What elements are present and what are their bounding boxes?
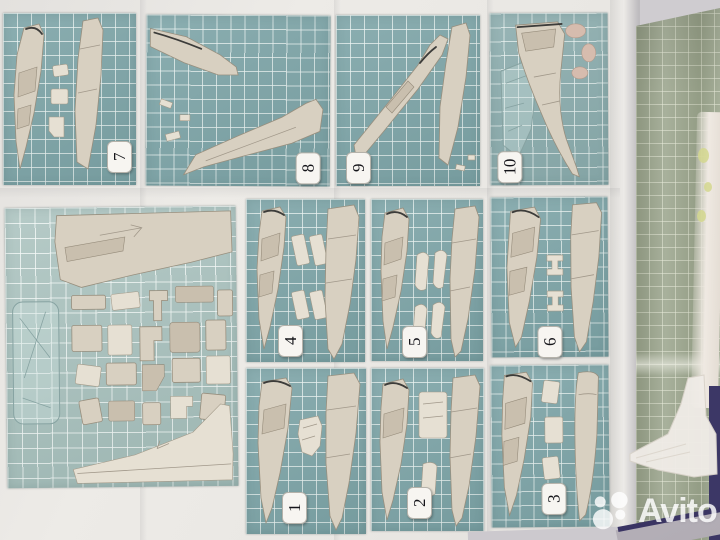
step-number: 7 bbox=[110, 153, 130, 161]
step-number: 3 bbox=[544, 495, 564, 503]
step-number-plate: 9 bbox=[346, 152, 371, 184]
parts-layout-panel bbox=[5, 206, 239, 488]
step-number-plate: 2 bbox=[407, 487, 432, 519]
small-parts bbox=[541, 380, 563, 480]
camouflage-spot bbox=[698, 148, 709, 163]
assembly-step-panel-6: 6 bbox=[490, 197, 608, 358]
block-part bbox=[419, 392, 447, 438]
assembly-step-panel-7: 7 bbox=[3, 13, 136, 185]
assembly-step-panel-5: 5 bbox=[371, 199, 483, 361]
fuselage-shell-part bbox=[570, 203, 602, 352]
avito-logo-icon bbox=[592, 489, 634, 533]
cockpit-tub-part bbox=[298, 416, 322, 456]
fuselage-shell-part bbox=[326, 373, 360, 530]
step-number: 8 bbox=[298, 164, 318, 172]
aircraft-tail-artwork bbox=[626, 374, 720, 506]
pink-resin-parts bbox=[566, 24, 596, 79]
step-number-plate: 3 bbox=[541, 483, 566, 515]
assembly-step-panel-8: 8 bbox=[146, 15, 331, 187]
step-4-parts-illustration bbox=[246, 199, 365, 362]
assembly-step-panel-4: 4 bbox=[246, 199, 365, 362]
step-number-plate: 7 bbox=[107, 141, 132, 173]
assembly-step-panel-10: 10 bbox=[490, 13, 609, 186]
small-parts bbox=[455, 155, 475, 171]
small-parts bbox=[49, 64, 69, 137]
assembly-step-panel-9: 9 bbox=[336, 15, 480, 186]
avito-watermark: Avito bbox=[592, 489, 717, 533]
step-number-plate: 1 bbox=[282, 492, 307, 524]
camouflage-spot bbox=[704, 182, 712, 192]
fuselage-shell-part bbox=[450, 206, 479, 357]
step-number: 5 bbox=[405, 338, 425, 346]
fuselage-shell-part bbox=[450, 375, 480, 526]
fuselage-half-part bbox=[380, 379, 409, 520]
step-number: 2 bbox=[410, 499, 430, 507]
step-number: 10 bbox=[500, 159, 520, 175]
step-number: 1 bbox=[285, 504, 305, 512]
small-parts-cluster bbox=[71, 286, 233, 426]
photo-of-instruction-sheet: 7 8 bbox=[0, 0, 720, 540]
parts-layout-illustration bbox=[5, 206, 239, 488]
step-number: 6 bbox=[540, 338, 560, 346]
step-number-plate: 4 bbox=[278, 325, 303, 357]
step-number-plate: 6 bbox=[537, 326, 562, 358]
step-5-parts-illustration bbox=[371, 199, 483, 361]
watermark-brand-text: Avito bbox=[638, 492, 717, 531]
step-number-plate: 5 bbox=[402, 326, 427, 358]
assembly-step-panel-1: 1 bbox=[246, 368, 366, 534]
step-number: 4 bbox=[281, 337, 301, 345]
camouflage-spot bbox=[697, 210, 706, 222]
step-number-plate: 10 bbox=[497, 151, 522, 183]
clear-sprue bbox=[13, 302, 60, 424]
step-number-plate: 8 bbox=[296, 152, 321, 184]
small-parts bbox=[159, 99, 190, 142]
step-number: 9 bbox=[349, 164, 369, 172]
assembly-step-panel-2: 2 bbox=[371, 368, 484, 531]
fuselage-shell-part bbox=[75, 18, 103, 169]
bracket-parts bbox=[547, 255, 563, 311]
insert-parts bbox=[291, 234, 328, 320]
